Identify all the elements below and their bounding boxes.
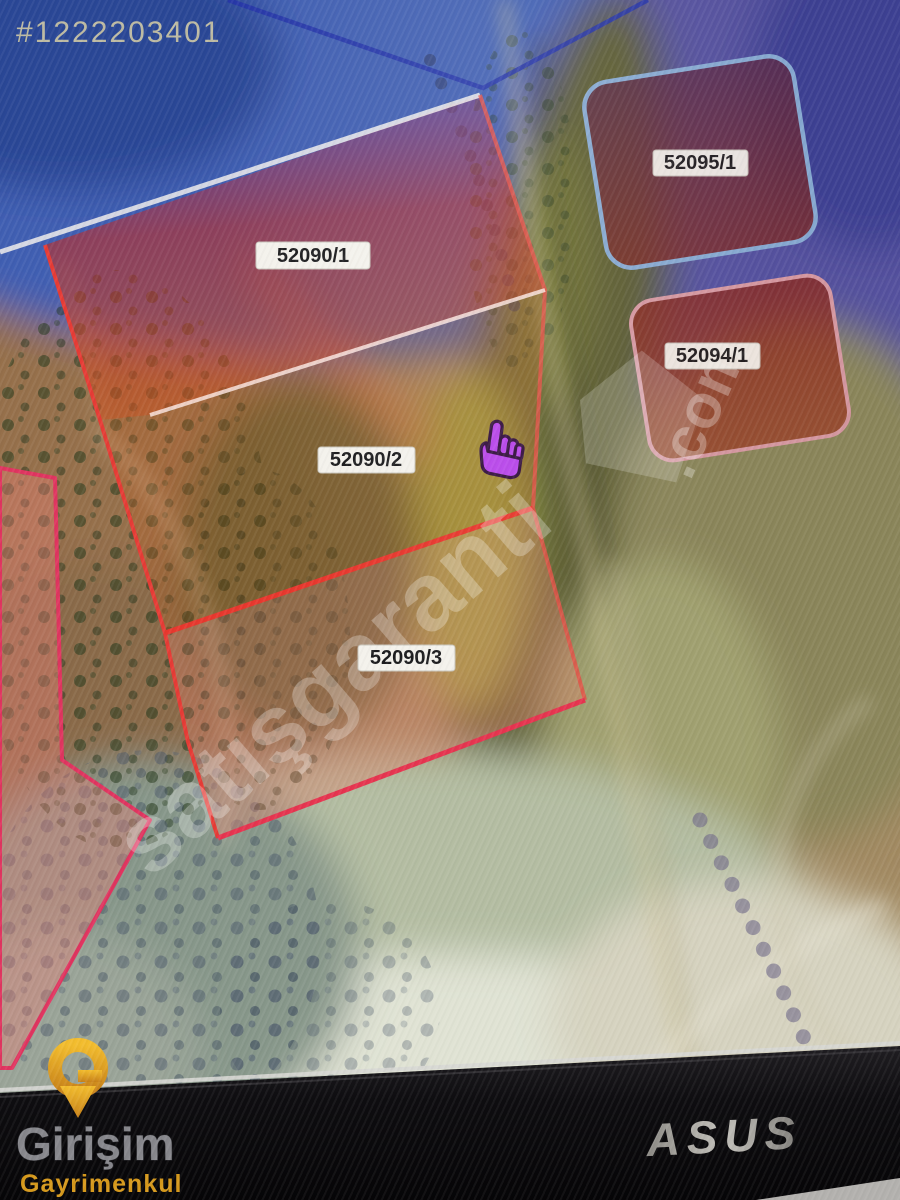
- parcel-label: 52090/3: [358, 645, 455, 671]
- svg-text:52094/1: 52094/1: [676, 345, 748, 367]
- monitor-brand-logo: ASUS: [644, 1106, 803, 1166]
- parcel-label: 52090/1: [256, 242, 370, 269]
- listing-id: #1222203401: [16, 16, 222, 49]
- parcel-label: 52095/1: [653, 150, 748, 176]
- photographed-monitor: satışgaranti .com 52090/1 52090/2 52090/…: [0, 0, 900, 1200]
- svg-text:52090/1: 52090/1: [277, 245, 349, 267]
- agency-name: Girişim: [16, 1118, 175, 1170]
- svg-text:52090/3: 52090/3: [370, 647, 442, 669]
- map-viewport[interactable]: satışgaranti .com 52090/1 52090/2 52090/…: [0, 0, 900, 1200]
- parcel-label: 52094/1: [665, 343, 760, 369]
- parcel-label: 52090/2: [318, 447, 415, 473]
- svg-text:52095/1: 52095/1: [664, 152, 736, 174]
- agency-subtitle: Gayrimenkul: [20, 1170, 182, 1198]
- svg-text:52090/2: 52090/2: [330, 449, 402, 471]
